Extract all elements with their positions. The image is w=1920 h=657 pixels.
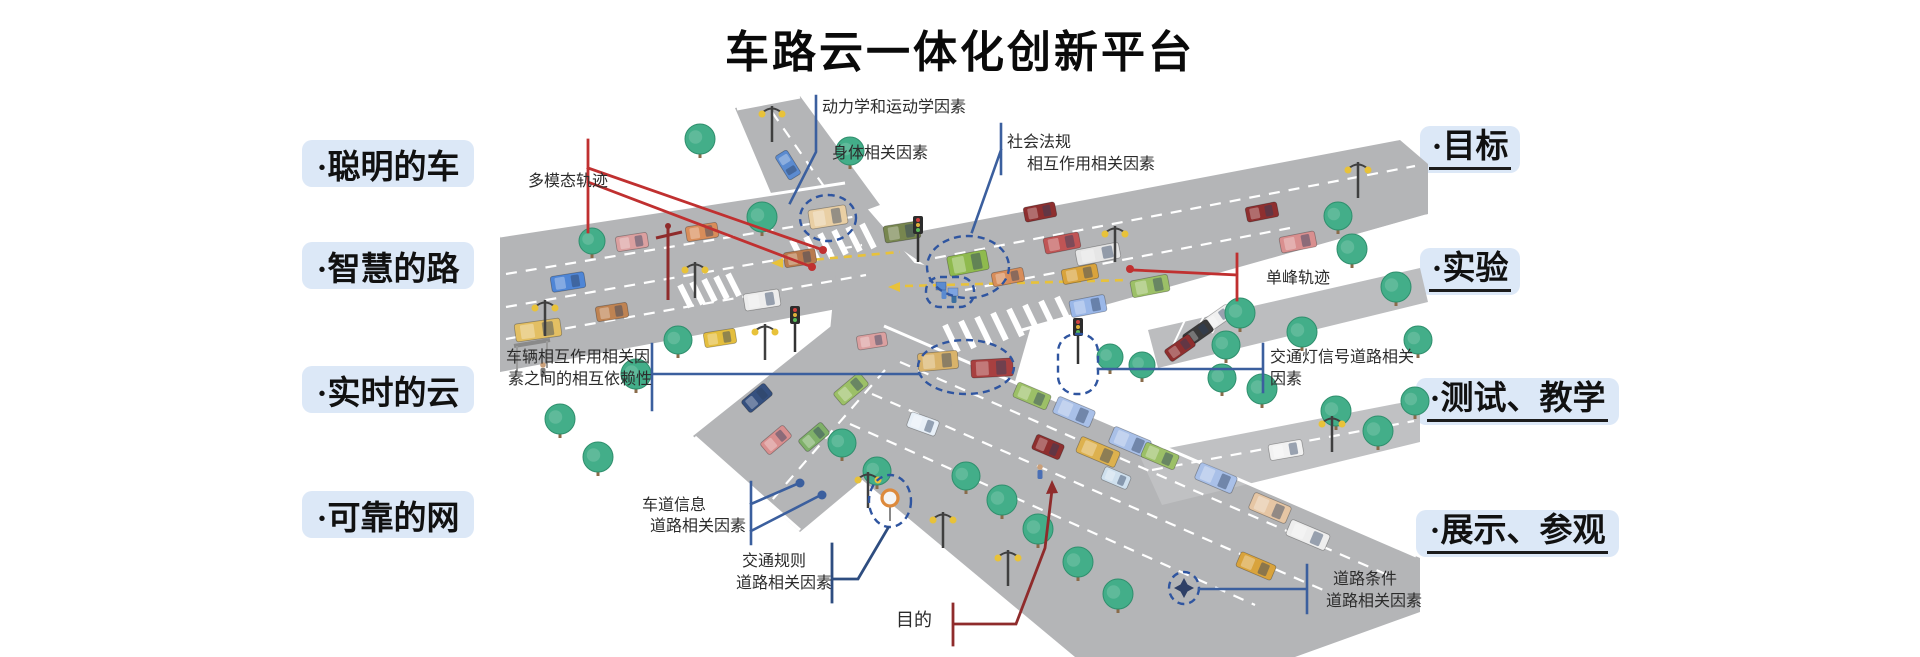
tree (545, 404, 575, 438)
annotation-unimodal: 单峰轨迹 (1266, 269, 1330, 287)
annotation-body-factors: 身体相关因素 (832, 144, 928, 162)
annotation-social-2: 相互作用相关因素 (1027, 155, 1155, 173)
callout-social-line (972, 124, 1001, 232)
annotation-rules-2: 道路相关因素 (736, 574, 832, 592)
annotation-signal-1: 交通灯信号道路相关 (1270, 348, 1414, 366)
street-lamp-icon (752, 324, 779, 360)
annotation-roadcond-2: 道路相关因素 (1326, 592, 1422, 610)
annotation-interaction-2: 素之间的相互依赖性 (508, 370, 652, 388)
tree (1212, 331, 1240, 363)
annotation-interaction-1: 车辆相互作用相关因 (506, 348, 650, 366)
tree (685, 124, 715, 158)
annotation-rules-1: 交通规则 (742, 552, 806, 570)
tree (1287, 317, 1317, 351)
annotation-dynamics: 动力学和运动学因素 (822, 98, 966, 116)
traffic-light-icon (1073, 318, 1083, 364)
pedestrian (1037, 464, 1043, 479)
annotation-lane-1: 车道信息 (642, 496, 706, 514)
annotation-lane-2: 道路相关因素 (650, 517, 746, 535)
tree (583, 442, 613, 476)
annotation-social-1: 社会法规 (1007, 133, 1071, 151)
annotation-roadcond-1: 道路条件 (1333, 570, 1397, 588)
roundabout-sign-icon (882, 490, 898, 521)
annotation-purpose: 目的 (896, 610, 932, 630)
traffic-light-icon (790, 306, 800, 352)
tree (1337, 234, 1367, 268)
callout-rules-line (832, 528, 888, 602)
tree (1129, 352, 1155, 382)
intersection-illustration: 多模态轨迹 动力学和运动学因素 身体相关因素 社会法规 相互作用相关因素 车辆相… (0, 0, 1920, 657)
annotation-signal-2: 因素 (1270, 370, 1302, 388)
slide: 车路云一体化创新平台 ·聪明的车 ·智慧的路 ·实时的云 ·可靠的网 ·目标 ·… (0, 0, 1920, 657)
tree (664, 326, 692, 358)
vehicle (971, 358, 1014, 378)
annotation-multimodal: 多模态轨迹 (528, 172, 608, 190)
